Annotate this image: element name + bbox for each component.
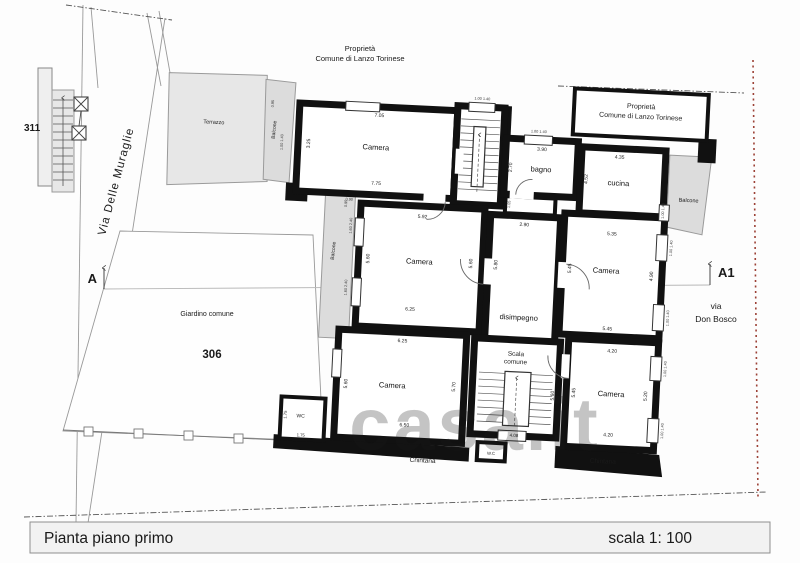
dim-window-e1: 1.00 1.40 [669, 240, 674, 256]
dim-balcony-w-window1: 1.60 2.40 [349, 218, 354, 234]
parcel-306: 306 [202, 349, 221, 361]
dim-camera-w-top: 5.92 [418, 214, 428, 220]
section-label-a: A [88, 271, 98, 286]
property-note-top-line2: Comune di Lanzo Torinese [315, 54, 404, 63]
dim-door: 0.90 [345, 197, 353, 201]
dim-camera-w-left: 5.60 [365, 253, 371, 263]
dim-camera-e-left: 5.45 [567, 263, 573, 273]
dim-camera-sw-top: 6.25 [397, 338, 407, 344]
section-label-a1: A1 [718, 265, 735, 280]
label-bagno: bagno [530, 164, 551, 174]
dim-camera-w-bottom: 6.25 [405, 306, 415, 312]
dim-disimpegno-left: 5.80 [493, 260, 499, 270]
dim-cucina-top: 4.35 [615, 154, 625, 160]
dim-camera-nw-bottom: 7.75 [371, 181, 381, 187]
street-don-bosco-line1: via [711, 301, 722, 311]
parcel-311: 311 [24, 123, 41, 134]
label-camera-w: Camera [406, 256, 434, 266]
dim-camera-e-right: 4.90 [649, 271, 655, 281]
dim-window-bagno: 1.00 1.40 [531, 129, 547, 134]
label-disimpegno: disimpegno [499, 312, 538, 323]
dim-camera-w-right: 5.60 [468, 258, 474, 268]
dim-balcony-e-window: 1.00 1.40 [661, 203, 666, 219]
title-bar: Pianta piano primo scala 1: 100 [30, 522, 770, 553]
terrace-area [164, 71, 272, 190]
watermark-casa-it: casa.it [349, 383, 600, 466]
label-camera-e: Camera [593, 266, 621, 276]
label-property-room-line1: Proprietà [627, 103, 656, 111]
dim-bagno-left: 2.70 [508, 162, 514, 172]
dim-camera-se-bottom: 4.20 [603, 432, 613, 438]
dim-camera-nw-top: 7.05 [374, 113, 384, 119]
plan-scale: scala 1: 100 [608, 530, 692, 547]
dim-window-se1: 1.00 1.40 [663, 361, 668, 377]
floor-plan-page: Camera bagno cucina Camera disimpegno Ca… [0, 0, 800, 563]
dim-camera-e-bottom: 5.45 [602, 326, 612, 332]
property-note-top-line1: Proprietà [345, 44, 376, 53]
label-camera-nw: Camera [362, 142, 390, 152]
dim-window-stair: 1.00 1.40 [474, 97, 490, 102]
dim-camera-se-top: 4.20 [607, 348, 617, 354]
dim-bagno-top: 3.90 [537, 147, 547, 153]
label-scala-line2: comune [504, 358, 528, 366]
room-disimpegno [484, 214, 560, 345]
dim-camera-e-top: 5.35 [607, 231, 617, 237]
floor-plan-canvas: Camera bagno cucina Camera disimpegno Ca… [0, 0, 800, 563]
dim-balcony-nw-window: 1.00 1.40 [280, 134, 285, 150]
dim-window-se2: 1.00 1.40 [660, 423, 665, 439]
room-camera-w [355, 203, 485, 332]
label-camera-se: Camera [598, 389, 626, 399]
dim-wc-h: 1.75 [283, 410, 288, 419]
label-terrace: Terrazzo [203, 119, 224, 126]
dim-passage: 1.05 [507, 201, 511, 209]
dim-disimpegno-top: 2.90 [519, 222, 529, 228]
dim-window-e2: 1.00 1.40 [665, 310, 670, 326]
plan-title: Pianta piano primo [44, 530, 173, 547]
dim-balcony-w-window2: 1.60 2.40 [344, 279, 349, 295]
label-cucina: cucina [607, 178, 630, 188]
dim-wc-w: 1.75 [297, 432, 306, 437]
label-scala-line1: Scala [508, 350, 525, 358]
dim-camera-nw-left: 3.25 [306, 138, 312, 148]
dim-cucina-left: 4.52 [583, 174, 589, 184]
label-giardino-comune: Giardino comune [180, 311, 233, 318]
label-wc: WC [296, 413, 305, 419]
dim-balcony-nw-depth: 0.95 [271, 100, 275, 108]
label-balcony-east: Balcone [679, 198, 699, 205]
street-don-bosco-line2: Don Bosco [695, 314, 737, 324]
dim-camera-se-right: 5.20 [643, 391, 649, 401]
